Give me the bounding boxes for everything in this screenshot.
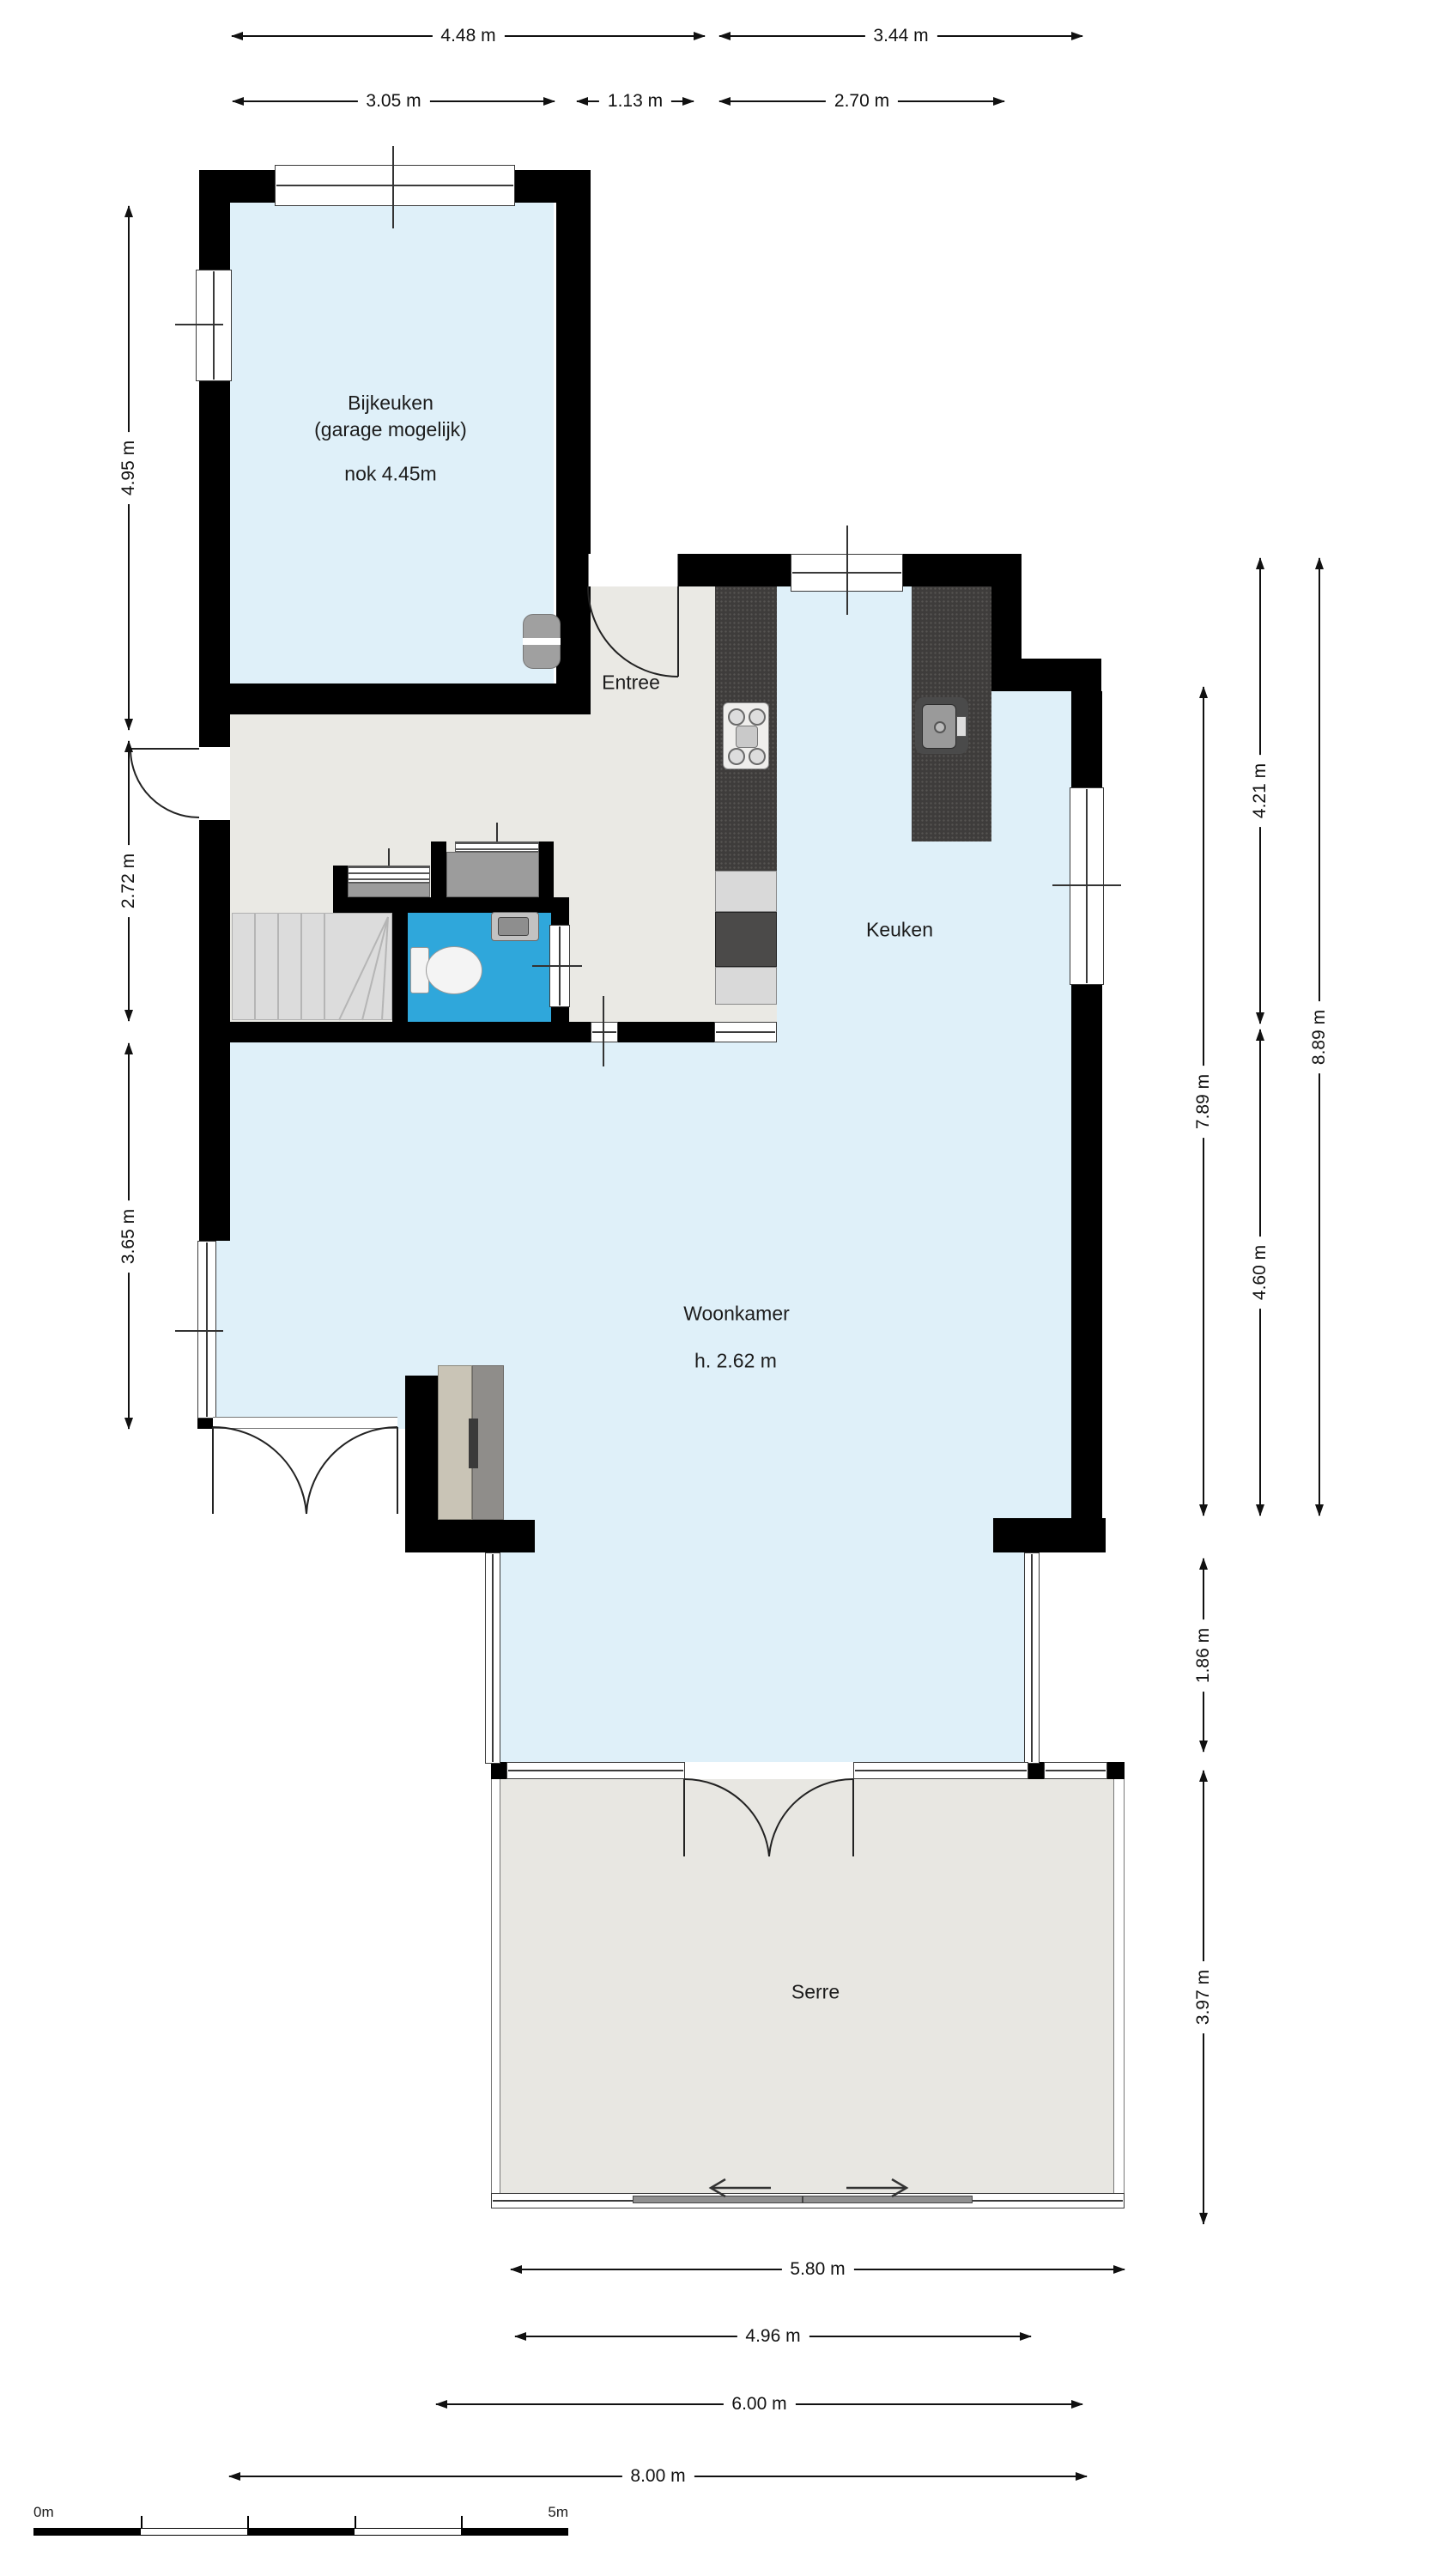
serre-post (1107, 1762, 1125, 1779)
sliding-panel (633, 2196, 803, 2203)
window (275, 165, 515, 206)
staircase (232, 913, 392, 1020)
serre-wall (491, 1779, 500, 2193)
scale-bar-strip (33, 2528, 568, 2536)
fireplace-cabinet (438, 1365, 472, 1520)
window-tick (846, 526, 848, 615)
label-woonkamer: Woonkamer (683, 1301, 790, 1327)
dim-top-5: 2.70 m (719, 100, 1004, 102)
floor-plan: 4.48 m 3.44 m 3.05 m 1.13 m 2.70 m 4.95 … (0, 0, 1449, 2576)
dim-right-397: 3.97 m (1203, 1771, 1204, 2224)
dim-left-1: 4.95 m (128, 206, 130, 730)
wall (1071, 691, 1102, 791)
door-swing (130, 749, 199, 817)
dim-bottom-3: 6.00 m (436, 2403, 1082, 2405)
serre-window (1044, 1762, 1107, 1779)
window-tick (603, 996, 604, 1066)
wall (392, 913, 408, 1022)
serre-window (853, 1762, 1028, 1779)
floor-woonkamer-strip (216, 1241, 230, 1429)
window (196, 270, 232, 381)
window (485, 1552, 500, 1764)
wall (199, 820, 230, 1241)
appliance-oven (715, 912, 777, 967)
window-tick (175, 1330, 223, 1332)
serre-post (491, 1762, 506, 1779)
dim-top-1: 4.48 m (232, 35, 705, 37)
fireplace-slot (469, 1419, 478, 1468)
scale-bar: 0m 5m (33, 2504, 568, 2540)
door-icon (523, 638, 561, 645)
dim-right-186: 1.86 m (1203, 1558, 1204, 1752)
wall (618, 1022, 714, 1042)
wall (431, 841, 446, 897)
dim-right-889: 8.89 m (1319, 558, 1320, 1516)
dim-bottom-1: 5.80 m (511, 2269, 1125, 2270)
dim-top-4: 1.13 m (577, 100, 694, 102)
dim-top-3: 3.05 m (233, 100, 555, 102)
label-keuken: Keuken (866, 917, 933, 944)
scale-end-label: 5m (548, 2504, 568, 2521)
stove-icon (723, 702, 769, 769)
sliding-panel (803, 2196, 973, 2203)
dim-left-3: 3.65 m (128, 1043, 130, 1429)
wall (991, 586, 1022, 659)
wall (991, 659, 1101, 691)
closet-front (348, 866, 430, 883)
dim-bottom-2: 4.96 m (515, 2336, 1031, 2337)
dim-left-2: 2.72 m (128, 741, 130, 1021)
window-tick (392, 146, 394, 228)
label-woonkamer-h: h. 2.62 m (694, 1348, 777, 1375)
garden-door-opening (213, 1417, 397, 1429)
closet (348, 883, 430, 897)
toilet-icon (426, 946, 482, 994)
wall (993, 1518, 1106, 1552)
room-note: (garage mogelijk) (314, 416, 467, 443)
wall-fireplace-l (405, 1520, 535, 1552)
wall (230, 1022, 591, 1042)
label-bijkeuken-nok: nok 4.45m (344, 461, 436, 488)
window (1070, 787, 1104, 985)
scale-start-label: 0m (33, 2504, 54, 2521)
appliance (715, 967, 777, 1005)
dim-right-789: 7.89 m (1203, 687, 1204, 1516)
window-tick (175, 324, 223, 325)
floor-bijkeuken (230, 203, 554, 683)
label-serre: Serre (791, 1979, 840, 2006)
closet-front (455, 841, 539, 852)
wall (551, 913, 569, 925)
dim-top-2: 3.44 m (719, 35, 1082, 37)
appliance (715, 871, 777, 912)
window (591, 1022, 618, 1042)
dim-right-460: 4.60 m (1259, 1030, 1261, 1516)
pass-through (714, 1022, 777, 1042)
washbasin-icon (491, 912, 539, 941)
dim-right-421: 4.21 m (1259, 558, 1261, 1024)
wall (551, 1007, 569, 1024)
dim-bottom-4: 8.00 m (229, 2476, 1087, 2477)
kitchen-sink-icon (915, 697, 968, 754)
serre-window (506, 1762, 685, 1779)
floor-woonkamer-bay (500, 1518, 1024, 1762)
closet (446, 852, 539, 897)
wall (333, 897, 569, 913)
serre-wall (1113, 1779, 1125, 2193)
window-tick (1052, 884, 1121, 886)
serre-post (1028, 1762, 1044, 1779)
wall (1071, 985, 1102, 1520)
label-entree: Entree (602, 670, 660, 696)
wall (556, 203, 591, 683)
window-tick (532, 965, 582, 967)
label-bijkeuken: Bijkeuken (garage mogelijk) (314, 390, 467, 443)
wall (199, 683, 591, 714)
front-door-opening (588, 554, 678, 586)
room-name: Bijkeuken (314, 390, 467, 416)
window (1024, 1552, 1040, 1764)
